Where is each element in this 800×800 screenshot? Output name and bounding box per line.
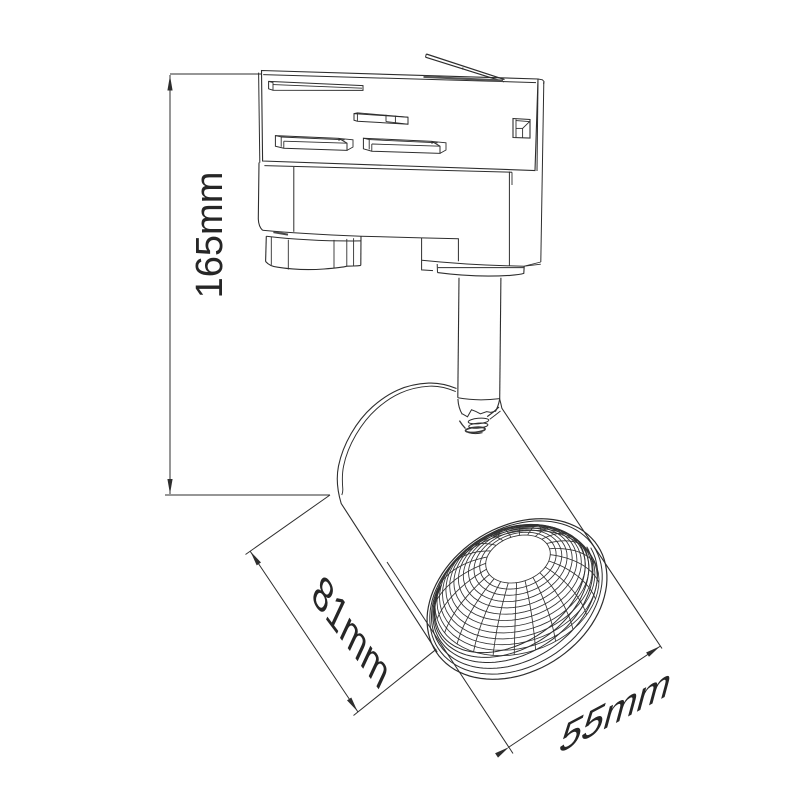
svg-text:165mm: 165mm	[189, 172, 231, 299]
